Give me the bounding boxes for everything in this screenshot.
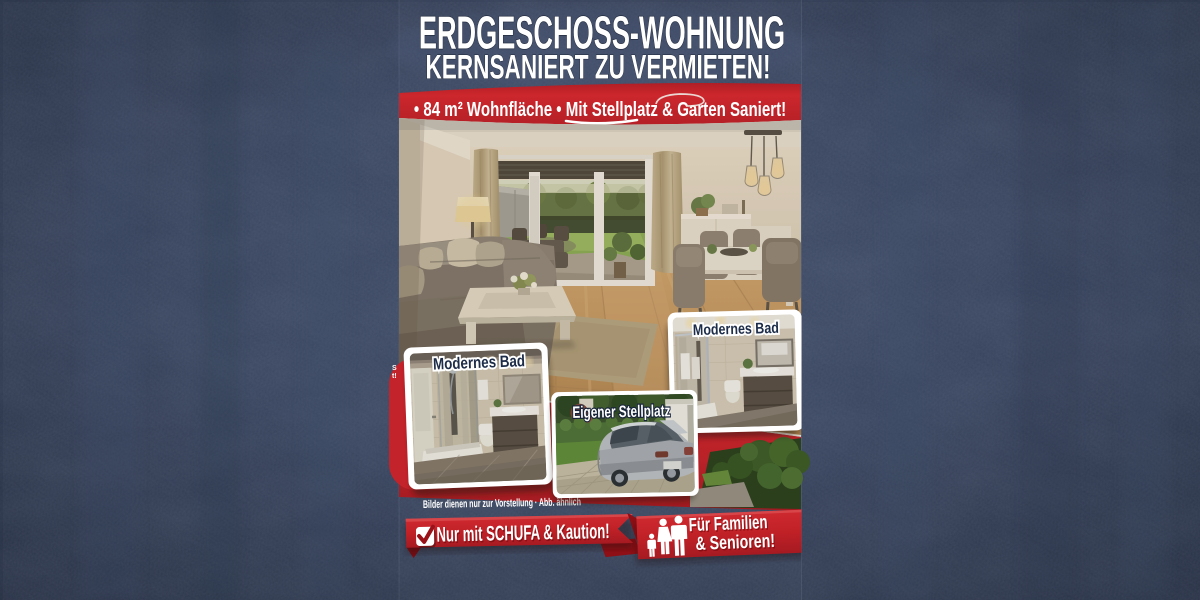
- svg-text:KERNSANIERT ZU VERMIETEN!: KERNSANIERT ZU VERMIETEN!: [425, 48, 770, 86]
- svg-text:Nur mit SCHUFA & Kaution!: Nur mit SCHUFA & Kaution!: [436, 519, 610, 546]
- svg-text:t!: t!: [392, 373, 397, 380]
- svg-text:Modernes Bad: Modernes Bad: [433, 352, 526, 374]
- svg-text:Modernes Bad: Modernes Bad: [693, 320, 779, 339]
- svg-text:& Senioren!: & Senioren!: [695, 530, 775, 555]
- svg-text:• 84 m² Wohnfläche • Mit Stell: • 84 m² Wohnfläche • Mit Stellplatz & Ga…: [414, 99, 786, 122]
- svg-text:S: S: [392, 365, 397, 372]
- svg-text:Eigener Stellplatz: Eigener Stellplatz: [572, 402, 670, 422]
